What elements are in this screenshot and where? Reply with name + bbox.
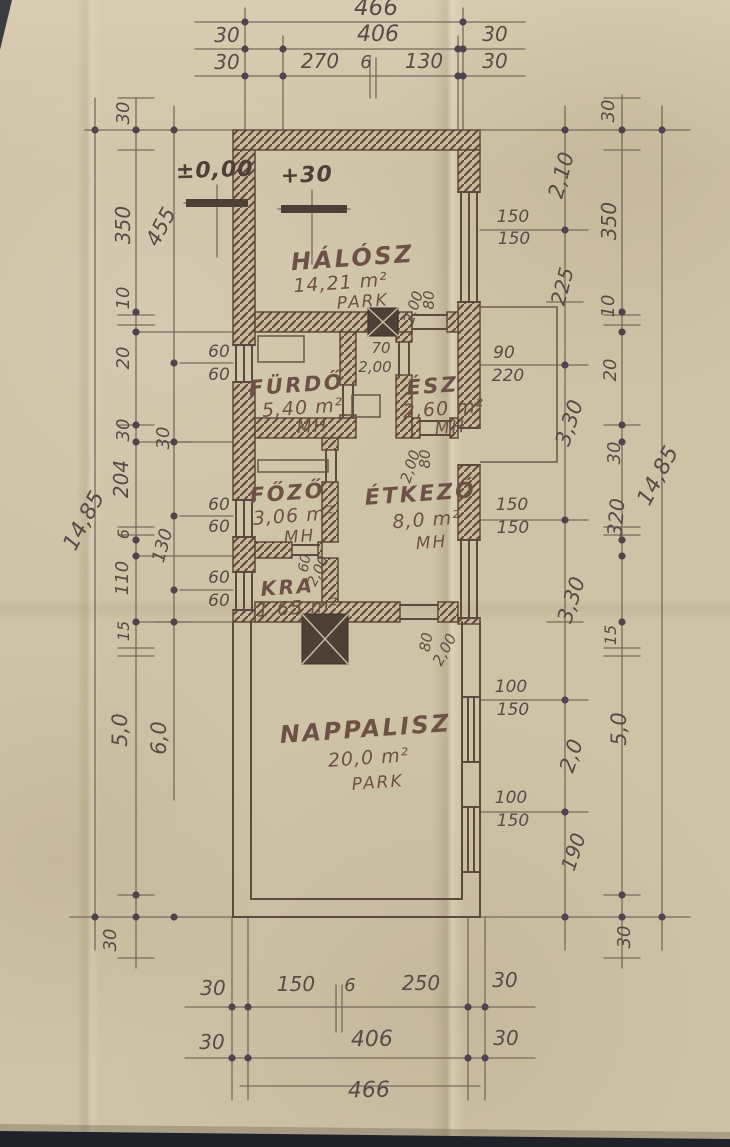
dim-label-bottom: 30 xyxy=(493,1026,518,1050)
dim-label-right: 2,0 xyxy=(555,736,588,775)
dim-label-left: 30 xyxy=(113,102,134,125)
room-floor-finish: MH xyxy=(296,416,329,438)
dim-dot xyxy=(561,913,568,920)
dim-label-bottom: 30 xyxy=(199,1030,224,1054)
level-bar-outside xyxy=(186,199,248,207)
floor-plan-photo: 4663040630302706130303015062503030406304… xyxy=(0,0,730,1147)
dim-label-bottom: 30 xyxy=(200,976,225,1000)
dim-label-left: 5,0 xyxy=(108,713,132,746)
dim-dot xyxy=(170,126,177,133)
level-marks xyxy=(186,199,347,213)
dim-label-left: 110 xyxy=(112,561,133,595)
dim-dot xyxy=(170,618,177,625)
dim-dot xyxy=(618,126,625,133)
room-area: 8,0 m² xyxy=(392,507,462,534)
dim-dot xyxy=(132,891,139,898)
window-dim-label: 150 xyxy=(497,700,529,720)
dim-dot xyxy=(561,126,568,133)
window-dim-label: 150 xyxy=(497,811,529,831)
dim-dot xyxy=(618,328,625,335)
wall-segment xyxy=(233,537,255,572)
dim-dot xyxy=(658,913,665,920)
dim-dot xyxy=(561,808,568,815)
dim-dot xyxy=(279,45,286,52)
dim-label-right: 190 xyxy=(556,830,591,874)
dim-label-left: 30 xyxy=(113,419,134,442)
dim-label-right: 30 xyxy=(614,926,635,949)
room-name: NAPPALISZ xyxy=(279,709,452,749)
dim-label-bottom: 406 xyxy=(351,1027,393,1053)
wall-segment xyxy=(447,312,458,332)
window-dim-label: 100 xyxy=(495,677,527,697)
dim-dot xyxy=(481,1054,488,1061)
photo-edges xyxy=(0,0,730,1147)
dim-label-left: 30 xyxy=(153,427,174,450)
dim-dot xyxy=(561,516,568,523)
dim-dot xyxy=(618,308,625,315)
wall-segment xyxy=(322,438,338,450)
dim-dot xyxy=(170,512,177,519)
window-dim-label: 150 xyxy=(497,518,529,538)
window-dim-label: 100 xyxy=(495,788,527,808)
dim-label-right: 5,0 xyxy=(607,712,631,745)
dim-label-right: 30 xyxy=(598,100,619,123)
dim-label-top: 406 xyxy=(357,22,399,47)
kitchen-counter xyxy=(258,460,328,472)
dim-dot xyxy=(459,45,466,52)
elevation-mark-label: ±0,00 xyxy=(176,157,255,185)
dim-dot xyxy=(244,1003,251,1010)
wall-segment xyxy=(255,312,368,332)
door-dim-label: 2,00 xyxy=(358,358,391,376)
dim-dot xyxy=(618,618,625,625)
dim-label-right: 30 xyxy=(604,442,625,465)
dim-label-left: 6,0 xyxy=(147,721,171,754)
dim-label-left: 6 xyxy=(114,529,133,539)
dim-label-top: 30 xyxy=(214,50,239,74)
window-dim-label: 60 xyxy=(208,342,230,362)
window-dim-label: 150 xyxy=(496,495,528,515)
dim-label-top: 30 xyxy=(482,22,507,46)
dim-dot xyxy=(561,226,568,233)
dim-label-bottom: 30 xyxy=(492,968,517,992)
dim-dot xyxy=(132,328,139,335)
room-floor-finish: PARK xyxy=(351,771,404,795)
wall-segment xyxy=(438,602,458,622)
dim-dot xyxy=(279,72,286,79)
dim-dot xyxy=(132,536,139,543)
dim-dot xyxy=(241,18,248,25)
dim-label-bottom: 250 xyxy=(402,971,440,995)
window-dim-label: 60 xyxy=(208,591,230,611)
window-dim-label: 150 xyxy=(497,207,529,227)
dim-dot xyxy=(618,891,625,898)
dim-label-left: 30 xyxy=(100,929,121,952)
dim-label-bottom: 466 xyxy=(348,1078,390,1104)
dim-dot xyxy=(170,359,177,366)
dim-dot xyxy=(170,913,177,920)
dim-dot xyxy=(464,1003,471,1010)
dim-dot xyxy=(241,45,248,52)
dim-dot xyxy=(459,18,466,25)
dim-label-right: 10 xyxy=(598,295,619,318)
wall-segment xyxy=(458,150,480,192)
door-dim-label: 70 xyxy=(371,339,390,357)
dim-dot xyxy=(228,1003,235,1010)
wc-fixture xyxy=(352,395,380,417)
level-bar-inside xyxy=(281,205,347,213)
dim-label-bottom: 150 xyxy=(277,972,315,996)
bathtub xyxy=(258,336,304,362)
dim-dot xyxy=(241,72,248,79)
dim-label-left: 10 xyxy=(113,287,134,310)
dim-dot xyxy=(91,126,98,133)
room-floor-finish: PARK xyxy=(336,290,389,314)
dim-dot xyxy=(658,126,665,133)
dim-dot xyxy=(132,552,139,559)
dim-dot xyxy=(618,913,625,920)
dim-dot xyxy=(481,1003,488,1010)
dim-label-top: 466 xyxy=(354,0,398,21)
dim-label-left: 204 xyxy=(109,460,133,498)
dim-dot xyxy=(170,586,177,593)
wall-segment xyxy=(233,130,480,150)
dim-label-right: 2,10 xyxy=(544,149,579,200)
window-dim-label: 60 xyxy=(208,568,230,588)
dim-dot xyxy=(244,1054,251,1061)
dim-label-left: 455 xyxy=(141,203,181,250)
dim-dot xyxy=(618,552,625,559)
dim-dot xyxy=(228,1054,235,1061)
dim-label-left: 14,85 xyxy=(58,487,110,554)
room-floor-finish: MH xyxy=(415,532,448,554)
dim-label-right: 3,30 xyxy=(553,574,590,626)
dim-dot xyxy=(91,913,98,920)
window-dim-label: 150 xyxy=(498,229,530,249)
window-dim-label: 90 xyxy=(493,343,515,363)
text-labels: 4663040630302706130303015062503030406304… xyxy=(58,0,684,1103)
dim-label-top: 270 xyxy=(301,49,339,73)
dim-label-right: 225 xyxy=(546,265,579,308)
floor-plan-drawing: 4663040630302706130303015062503030406304… xyxy=(0,0,730,1147)
elevation-mark-label: +30 xyxy=(280,162,333,189)
dim-label-bottom: 6 xyxy=(344,975,355,996)
wall-segment xyxy=(233,610,255,622)
dim-dot xyxy=(459,72,466,79)
dim-dot xyxy=(561,361,568,368)
dim-label-top: 6 xyxy=(360,52,371,73)
dim-label-left: 20 xyxy=(113,347,134,370)
dim-dot xyxy=(618,421,625,428)
dim-label-top: 130 xyxy=(405,49,443,73)
dim-label-right: 15 xyxy=(601,625,620,645)
dim-label-right: 14,85 xyxy=(632,442,684,509)
window-dim-label: 60 xyxy=(208,365,230,385)
room-area: 20,0 m² xyxy=(327,744,410,772)
dim-label-left: 15 xyxy=(114,621,133,641)
dim-label-right: 350 xyxy=(597,202,621,240)
room-floor-finish: MH xyxy=(283,526,316,548)
window-dim-label: 60 xyxy=(208,495,230,515)
dim-label-right: 20 xyxy=(600,359,621,382)
dim-dot xyxy=(132,126,139,133)
dim-label-left: 350 xyxy=(111,206,135,244)
room-floor-finish: MH xyxy=(434,417,467,439)
dim-dot xyxy=(132,618,139,625)
dim-label-right: 320 xyxy=(602,497,629,537)
photo-corner-top-left xyxy=(0,0,12,50)
room-name: ÉSZ xyxy=(406,371,460,400)
dim-label-top: 30 xyxy=(482,49,507,73)
window-dim-label: 220 xyxy=(492,366,524,386)
dim-label-top: 30 xyxy=(214,23,239,47)
dim-dot xyxy=(132,913,139,920)
dim-dot xyxy=(561,696,568,703)
dim-label-left: 130 xyxy=(148,526,177,565)
window-dim-label: 60 xyxy=(208,517,230,537)
dim-dot xyxy=(464,1054,471,1061)
